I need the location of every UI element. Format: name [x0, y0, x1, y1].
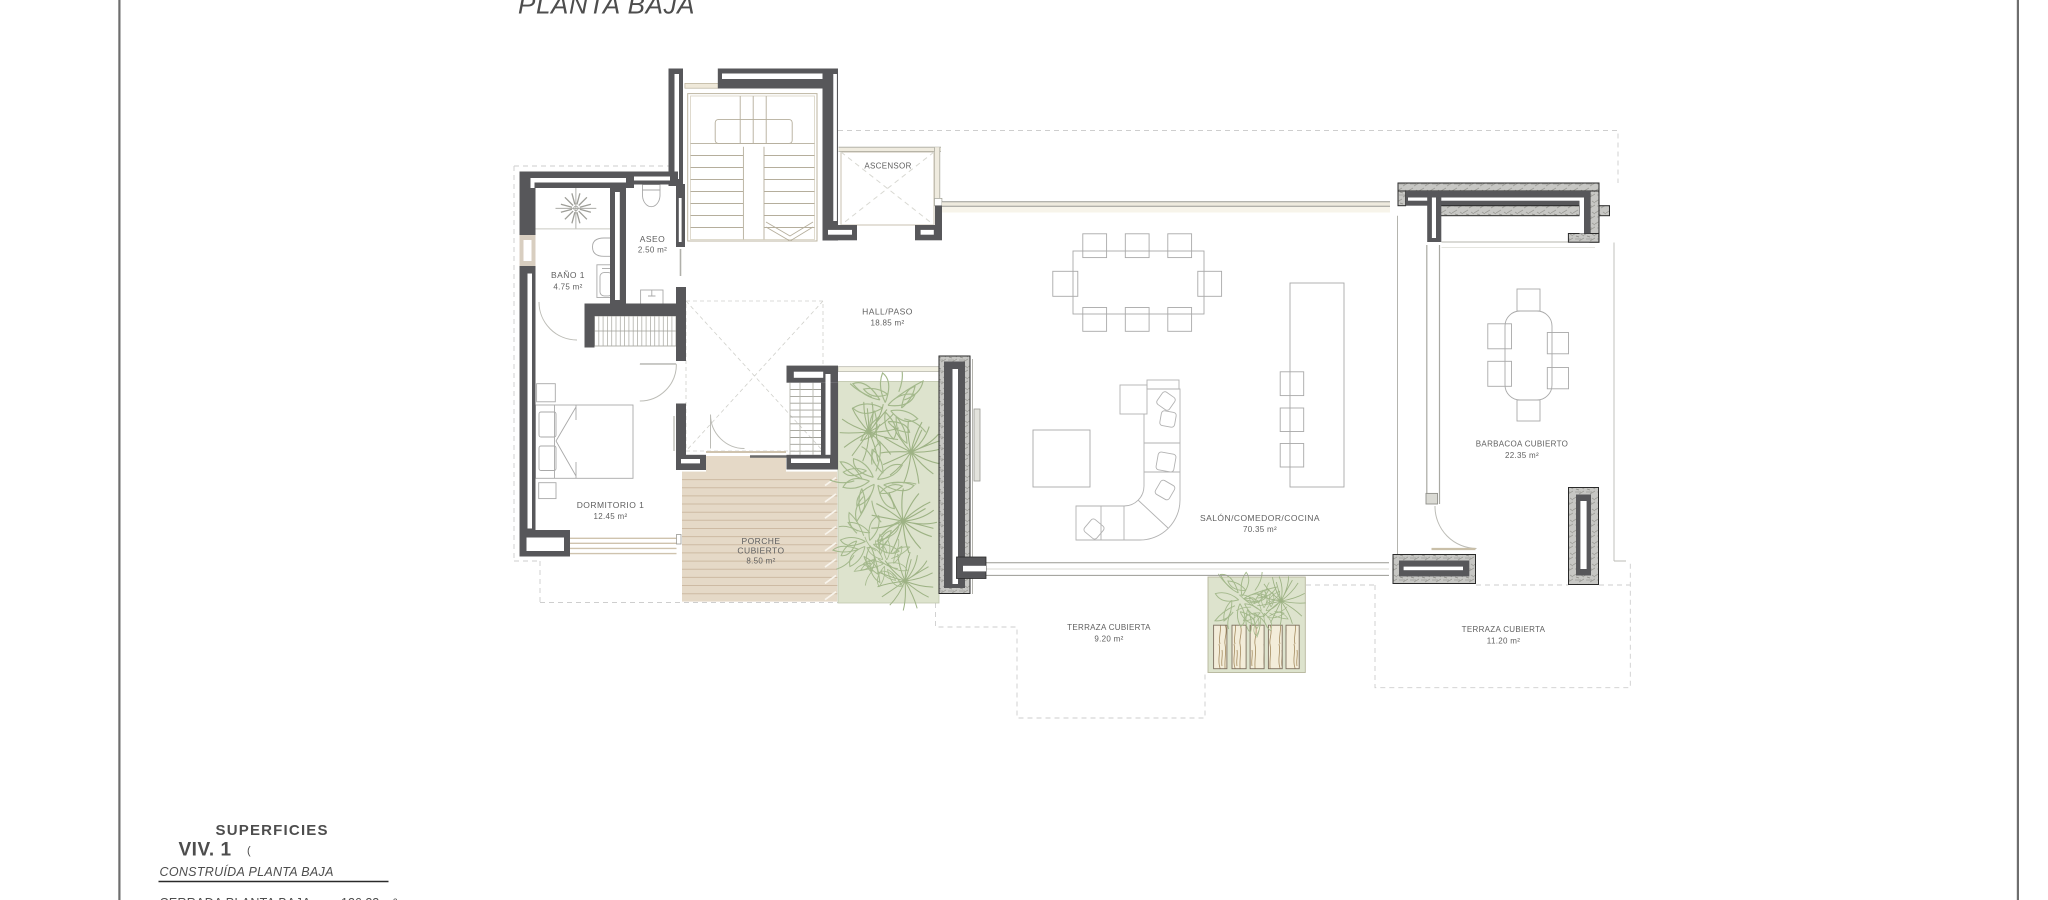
svg-text:BAÑO 1: BAÑO 1	[551, 270, 585, 280]
svg-text:CONSTRUÍDA PLANTA BAJA: CONSTRUÍDA PLANTA BAJA	[160, 864, 334, 879]
svg-text:ASCENSOR: ASCENSOR	[864, 162, 911, 171]
svg-text:HALL/PASO: HALL/PASO	[862, 307, 913, 317]
svg-text:PORCHE: PORCHE	[741, 536, 780, 546]
svg-text:11.20 m²: 11.20 m²	[1487, 637, 1520, 646]
svg-text:ASEO: ASEO	[640, 234, 665, 244]
svg-text:TERRAZA CUBIERTA: TERRAZA CUBIERTA	[1462, 625, 1546, 634]
svg-text:CUBIERTO: CUBIERTO	[737, 545, 784, 555]
svg-text:70.35 m²: 70.35 m²	[1243, 525, 1277, 534]
svg-text:18.85 m²: 18.85 m²	[871, 319, 905, 328]
svg-text:CERRADA PLANTA BAJA: CERRADA PLANTA BAJA	[160, 896, 312, 900]
svg-text:(: (	[247, 845, 251, 857]
svg-text:DORMITORIO 1: DORMITORIO 1	[577, 500, 645, 510]
svg-text:SALÓN/COMEDOR/COCINA: SALÓN/COMEDOR/COCINA	[1200, 513, 1320, 523]
svg-text:4.75 m²: 4.75 m²	[553, 283, 582, 292]
svg-text:PLANTA BAJA: PLANTA BAJA	[518, 0, 695, 20]
svg-text:BARBACOA CUBIERTO: BARBACOA CUBIERTO	[1476, 440, 1568, 449]
svg-text:126.22 m²: 126.22 m²	[341, 896, 397, 900]
svg-text:VIV. 1: VIV. 1	[179, 840, 232, 861]
svg-text:9.20 m²: 9.20 m²	[1094, 635, 1123, 644]
svg-text:SUPERFICIES: SUPERFICIES	[216, 822, 329, 839]
svg-text:8.50 m²: 8.50 m²	[746, 556, 775, 565]
svg-text:TERRAZA CUBIERTA: TERRAZA CUBIERTA	[1067, 623, 1151, 632]
svg-text:12.45 m²: 12.45 m²	[594, 512, 628, 521]
svg-text:2.50 m²: 2.50 m²	[638, 246, 667, 255]
svg-text:22.35 m²: 22.35 m²	[1505, 451, 1539, 460]
